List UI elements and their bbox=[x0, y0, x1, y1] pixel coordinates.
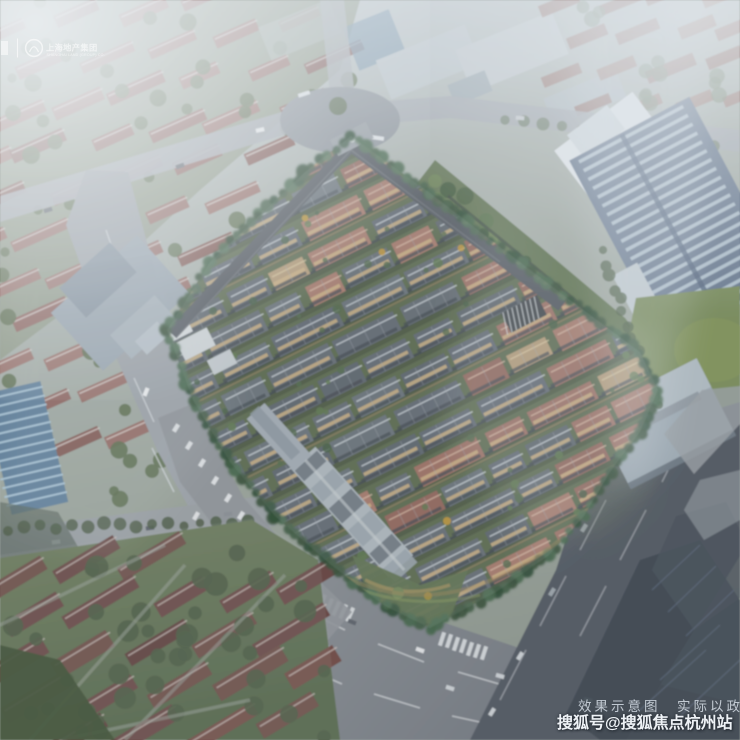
svg-text:SHANGHAI LAND (GROUP) CO.: SHANGHAI LAND (GROUP) CO. bbox=[47, 53, 105, 57]
svg-text:搜狐号@搜狐焦点杭州站: 搜狐号@搜狐焦点杭州站 bbox=[557, 713, 733, 732]
svg-text:效果示意图 实际以政: 效果示意图 实际以政 bbox=[578, 698, 740, 714]
svg-text:上海地产集团: 上海地产集团 bbox=[46, 43, 98, 53]
